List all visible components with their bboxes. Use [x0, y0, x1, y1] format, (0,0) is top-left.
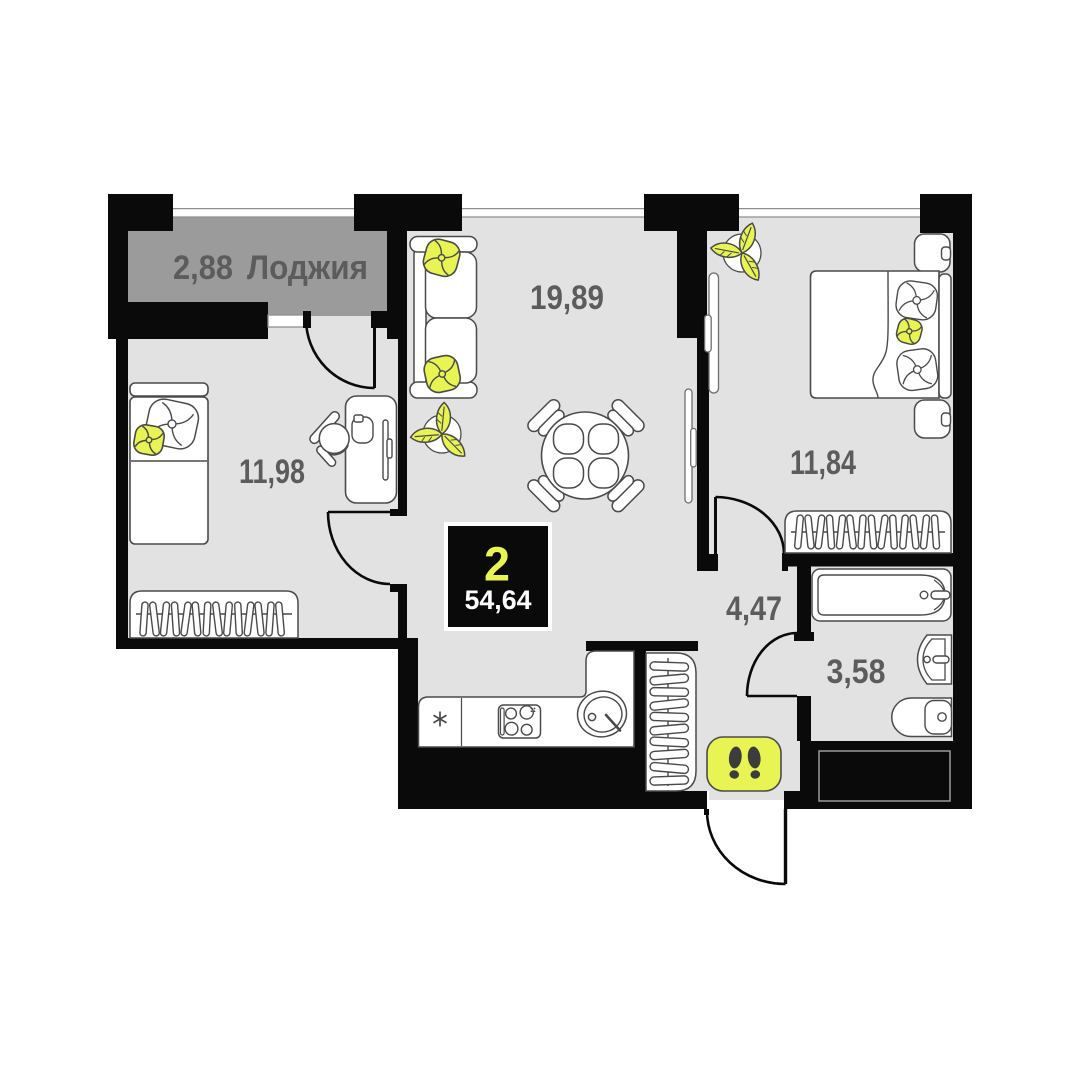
svg-text:4,47: 4,47	[726, 590, 782, 628]
svg-text:2: 2	[484, 539, 510, 592]
svg-text:11,84: 11,84	[790, 444, 856, 482]
svg-text:19,89: 19,89	[530, 279, 604, 317]
svg-text:2,88: 2,88	[173, 249, 233, 287]
svg-text:11,98: 11,98	[239, 453, 305, 491]
svg-text:3,58: 3,58	[827, 653, 886, 691]
svg-text:Лоджия: Лоджия	[247, 249, 368, 287]
svg-text:54,64: 54,64	[465, 585, 532, 615]
